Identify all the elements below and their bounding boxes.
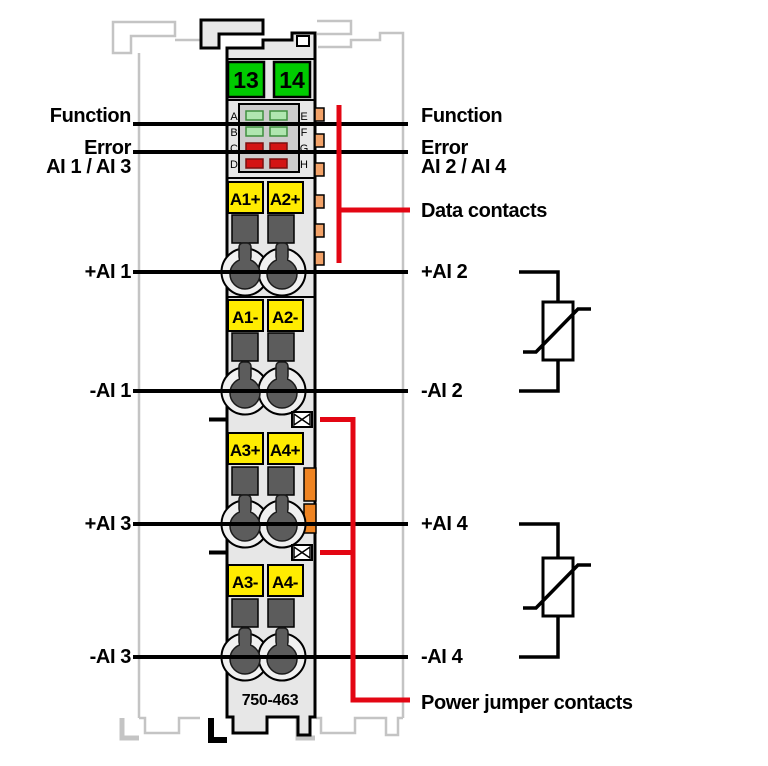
label-ai3-minus: -AI 3 xyxy=(90,646,132,668)
plate-a4m-label: A4- xyxy=(272,573,298,592)
label-ai2-minus: -AI 2 xyxy=(421,380,463,402)
label-ai4-plus: +AI 4 xyxy=(421,513,469,535)
data-contact-5 xyxy=(315,224,324,237)
left-neighbor-bottom xyxy=(139,718,200,733)
data-contact-3 xyxy=(315,163,324,176)
label-function-left: Function xyxy=(50,105,131,127)
data-contacts-callout xyxy=(339,105,410,263)
thermistor-1-bottom-lead xyxy=(519,360,558,391)
opening-1l xyxy=(232,215,258,243)
thermistor-2-bottom-lead xyxy=(519,616,558,657)
label-ai4-minus: -AI 4 xyxy=(421,646,464,668)
led-row-d-label: D xyxy=(230,159,238,171)
plate-a4p-label: A4+ xyxy=(270,441,301,460)
thermistor-2 xyxy=(519,524,591,657)
led-b1 xyxy=(246,127,263,136)
plate-a2m-label: A2- xyxy=(272,308,298,327)
led-row-b-label: B xyxy=(230,127,237,139)
jumper-contact-upper xyxy=(304,468,316,501)
opening-2r xyxy=(268,333,294,361)
label-channels-left: AI 1 / AI 3 xyxy=(46,156,131,178)
wiring-diagram: 13 14 A B C D E F G H xyxy=(0,0,768,766)
opening-2l xyxy=(232,333,258,361)
label-ai3-plus: +AI 3 xyxy=(85,513,132,535)
opening-4r xyxy=(268,599,294,627)
plate-a3m-label: A3- xyxy=(232,573,258,592)
led-row-a-label: A xyxy=(230,111,238,123)
opening-4l xyxy=(232,599,258,627)
plate-a1m-label: A1- xyxy=(232,308,258,327)
left-labels: Function Error AI 1 / AI 3 +AI 1 -AI 1 +… xyxy=(46,105,131,668)
led-row-h-label: H xyxy=(300,159,308,171)
data-contact-1 xyxy=(315,108,324,121)
label-channels-right: AI 2 / AI 4 xyxy=(421,156,507,178)
diagram-canvas: 13 14 A B C D E F G H xyxy=(0,0,768,766)
led-b2 xyxy=(270,127,287,136)
left-neighbor-latch xyxy=(113,22,175,53)
led-row-f-label: F xyxy=(301,127,308,139)
label-ai1-minus: -AI 1 xyxy=(90,380,132,402)
module-latch xyxy=(201,20,263,48)
right-labels: Function Error AI 2 / AI 4 Data contacts… xyxy=(421,105,633,714)
data-contact-4 xyxy=(315,195,324,208)
opening-3r xyxy=(268,467,294,495)
left-neighbor-foot xyxy=(122,718,139,738)
module-top-slot xyxy=(297,36,309,46)
terminal-13-label: 13 xyxy=(233,67,259,93)
label-power-jumper: Power jumper contacts xyxy=(421,692,633,714)
thermistor-1 xyxy=(519,272,591,391)
right-neighbor-top-step xyxy=(318,33,403,718)
red-callouts xyxy=(320,105,410,700)
opening-1r xyxy=(268,215,294,243)
opening-3l xyxy=(232,467,258,495)
led-block: A B C D E F G H xyxy=(230,104,308,172)
module-foot xyxy=(211,718,227,740)
led-d2 xyxy=(270,159,287,168)
led-d1 xyxy=(246,159,263,168)
right-neighbor-latch-bar xyxy=(317,21,351,34)
data-contact-2 xyxy=(315,134,324,147)
label-data-contacts: Data contacts xyxy=(421,200,547,222)
right-neighbor-bottom xyxy=(316,718,403,735)
thermistor-1-top-lead xyxy=(519,272,558,302)
led-a2 xyxy=(270,111,287,120)
plate-a1p-label: A1+ xyxy=(230,190,261,209)
label-ai1-plus: +AI 1 xyxy=(85,261,132,283)
thermistor-2-top-lead xyxy=(519,524,558,558)
label-function-right: Function xyxy=(421,105,502,127)
data-contact-6 xyxy=(315,252,324,265)
terminal-14-label: 14 xyxy=(279,67,305,93)
part-number: 750-463 xyxy=(242,692,299,709)
led-a1 xyxy=(246,111,263,120)
plate-a3p-label: A3+ xyxy=(230,441,261,460)
label-ai2-plus: +AI 2 xyxy=(421,261,468,283)
plate-a2p-label: A2+ xyxy=(270,190,301,209)
led-row-e-label: E xyxy=(300,111,307,123)
